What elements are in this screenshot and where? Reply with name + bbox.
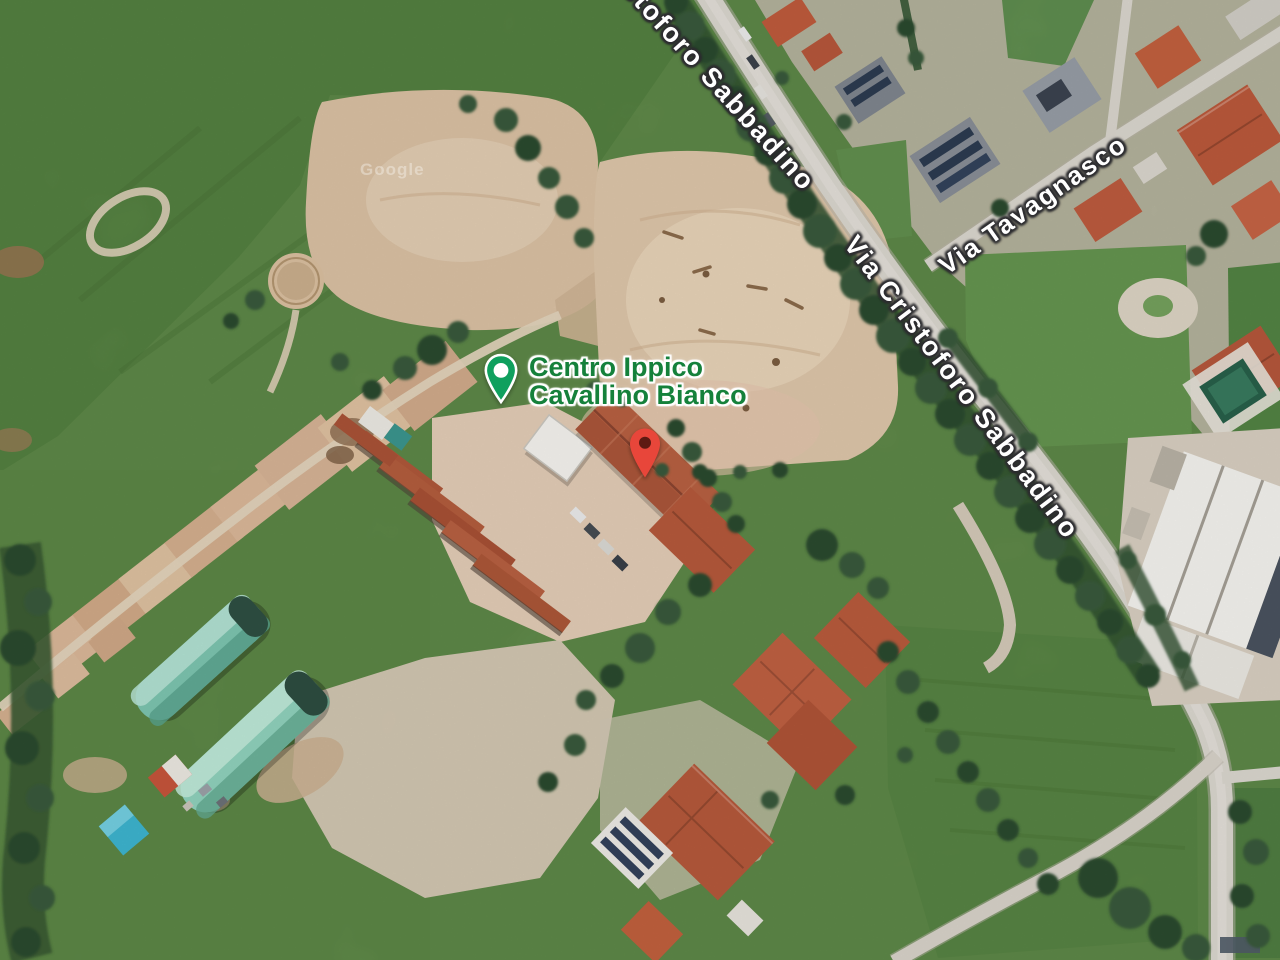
poi-pin-shape — [486, 355, 516, 402]
poi-label: Centro Ippico Cavallino Bianco — [529, 353, 747, 409]
destination-pin-shape — [630, 429, 660, 478]
map-canvas[interactable]: Cristoforo Sabbadino Via Cristoforo Sabb… — [0, 0, 1280, 960]
poi-pin-icon[interactable] — [483, 353, 519, 405]
poi-label-line2: Cavallino Bianco — [529, 381, 747, 409]
google-watermark: Google — [360, 160, 425, 180]
poi-label-line1: Centro Ippico — [529, 353, 747, 381]
destination-marker[interactable] — [628, 427, 662, 484]
poi-centro-ippico[interactable]: Centro Ippico Cavallino Bianco — [483, 353, 747, 409]
destination-marker-icon[interactable] — [628, 427, 662, 479]
